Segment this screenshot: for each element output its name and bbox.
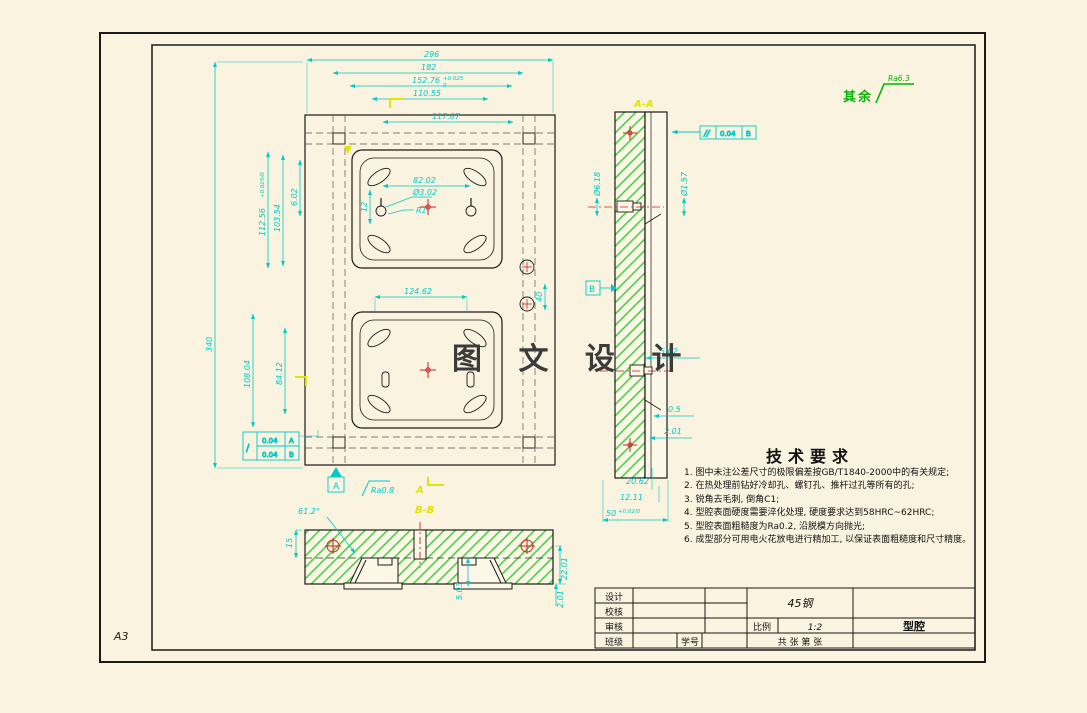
dim-152-76: 152.76 [412, 76, 440, 85]
dim-5-03: 5.03 [455, 582, 464, 600]
dim-r1: R1 [416, 206, 427, 215]
fcf-row1-datum: A [289, 437, 294, 445]
dim-2-01: 2.01 [664, 427, 682, 436]
title-studentid-label: 学号 [681, 636, 699, 648]
fcf-row1-value: 0.04 [262, 437, 278, 445]
dim-22-01: 22.01 [560, 557, 569, 580]
title-check-label: 校核 [605, 606, 623, 618]
tech-requirements-title: 技术要求 [766, 443, 854, 467]
dim-110-55: 110.55 [413, 89, 441, 98]
dim-117-87: 117.87 [432, 112, 461, 121]
tech-req-item: 3. 锐角去毛刺, 倒角C1; [684, 494, 986, 507]
tech-requirements-list: 1. 图中未注公差尺寸的极限偏差按GB/T1840-2000中的有关规定; 2.… [684, 467, 986, 547]
tech-req-item: 4. 型腔表面硬度需要淬化处理, 硬度要求达到58HRC~62HRC; [684, 507, 986, 520]
dim-112-56-tol: +0.025/0 [260, 172, 266, 198]
dim-103-54: 103.54 [273, 204, 282, 232]
section-a-label: A-A [633, 99, 654, 110]
tech-req-item: 5. 型腔表面粗糙度为Ra0.2, 沿脱模方向抛光; [684, 521, 986, 534]
dim-12: 12 [360, 202, 369, 212]
dim-12-11: 12.11 [620, 493, 643, 502]
fcf-parallel-value: 0.04 [720, 130, 736, 138]
dim-50: 50 [606, 509, 616, 518]
fcf-combined: / 0.04 A 0.04 B [243, 430, 318, 460]
dim-82-02: 82.02 [413, 176, 436, 185]
title-scale-label: 比例 [753, 621, 771, 633]
fcf-combined-symbol: / [246, 443, 250, 454]
dim-152-76-tol-up: +0.025 [443, 76, 464, 82]
datum-a-label: A [333, 482, 340, 492]
dim-182: 182 [421, 63, 436, 72]
title-class-label: 班级 [605, 636, 623, 648]
dim-296: 296 [424, 50, 439, 59]
title-part-name: 型腔 [903, 619, 925, 633]
center-mark [420, 362, 436, 378]
tech-req-item: 6. 成型部分可用电火花放电进行精加工, 以保证表面粗糙度和尺寸精度。 [684, 534, 986, 547]
datum-b-label: B [589, 285, 595, 295]
roughness-value: Ra0.8 [371, 486, 394, 495]
tech-req-item: 1. 图中未注公差尺寸的极限偏差按GB/T1840-2000中的有关规定; [684, 467, 986, 480]
title-sheets-label: 共 张 第 张 [778, 636, 823, 648]
guide-bushes [520, 260, 534, 311]
cut-a-label: A [415, 485, 424, 496]
fcf-parallel-datum: B [746, 130, 751, 138]
title-block: 设计 校核 审核 班级 学号 45钢 比例 1:2 共 张 第 张 型腔 [595, 588, 975, 648]
tech-req-item: 2. 在热处理前钻好冷却孔、螺钉孔、推杆过孔等所有的孔; [684, 480, 986, 493]
fcf-row2-value: 0.04 [262, 451, 278, 459]
dim-15: 15 [285, 538, 294, 548]
dim-2-01b: 2.01 [556, 590, 565, 608]
dim-hole-dia: Ø3.02 [412, 187, 437, 197]
title-material: 45钢 [788, 597, 815, 610]
fcf-parallel-symbol: // [703, 129, 711, 138]
dim-50-tol: +0.02/0 [618, 509, 641, 515]
fcf-parallel: // 0.04 B [672, 126, 756, 139]
dim-20-62: 20.62 [626, 477, 649, 486]
section-b-view [305, 522, 553, 589]
rest-surface-note: 其余 [843, 86, 873, 105]
dim-340: 340 [205, 337, 214, 352]
title-scale-value: 1:2 [808, 623, 823, 633]
dim-6-18: Ø6.18 [592, 172, 602, 197]
datum-a-flag-icon: A [328, 467, 344, 492]
dim-112-56: 112.56 [258, 208, 267, 236]
dim-61-2: 61.2° [298, 507, 320, 516]
watermark: 图 文 设 计 [452, 334, 694, 378]
dim-1-57: Ø1.57 [679, 171, 689, 197]
sheet-size-label: A3 [114, 630, 129, 643]
dim-124-62: 124.62 [404, 287, 432, 296]
dim-84-12: 84.12 [275, 362, 284, 385]
dim-40: 40 [535, 292, 544, 302]
dim-152-76-tol-dn: 0 [443, 83, 447, 89]
drawing-canvas: 296 182 152.76 +0.025 0 110.55 117.87 34… [0, 0, 1087, 709]
dim-6-02: 6.02 [290, 188, 299, 206]
upper-cavity [352, 150, 502, 268]
fcf-row2-datum: B [289, 451, 294, 459]
dim-108-04: 108.04 [243, 360, 252, 388]
title-review-label: 审核 [605, 621, 623, 633]
rest-roughness-icon: Ra6.3 [876, 74, 914, 103]
rest-roughness-value: Ra6.3 [888, 74, 910, 83]
roughness-icon: Ra0.8 [362, 481, 394, 496]
datum-b-flag-icon: B [586, 281, 617, 295]
section-b-label: B-B [415, 505, 434, 516]
title-design-label: 设计 [605, 591, 623, 603]
dim-0-5: 0.5 [668, 405, 681, 414]
